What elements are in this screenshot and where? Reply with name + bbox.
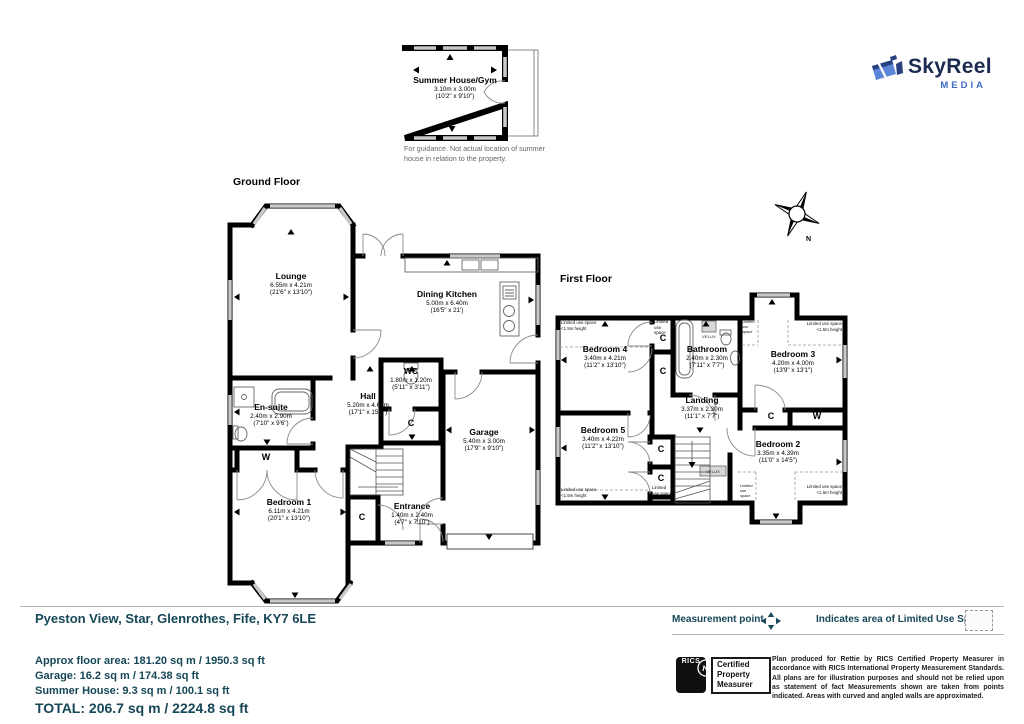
certified-property-measurer-badge: Certified Property Measurer	[711, 657, 771, 694]
cupboard-label: C	[768, 411, 775, 421]
room-label-garage: Garage 5.40m x 3.00m (17'9" x 9'10")	[463, 428, 505, 452]
limited-use-swatch	[965, 610, 993, 631]
wardrobe-label: W	[262, 452, 271, 462]
cupboard-label: C	[408, 418, 415, 428]
limited-use-note: Limited use space	[654, 319, 673, 336]
room-label-dining-kitchen: Dining Kitchen 5.00m x 6.40m (16'5" x 21…	[417, 290, 477, 314]
velux-window-label: VELUX	[702, 334, 716, 339]
room-dims-imperial: (10'2" x 9'10")	[413, 93, 497, 100]
cupboard-label: C	[660, 366, 667, 376]
approx-floor-area: Approx floor area: 181.20 sq m / 1950.3 …	[35, 654, 265, 669]
limited-use-note: Limited use space <1.5m height	[797, 484, 842, 495]
limited-use-note: Limited use space	[742, 320, 757, 335]
room-name: Summer House/Gym	[413, 76, 497, 86]
property-address: Pyeston View, Star, Glenrothes, Fife, KY…	[35, 611, 316, 626]
summer-house-area: Summer House: 9.3 sq m / 100.1 sq ft	[35, 684, 265, 699]
summer-house-note: For guidance. Not actual location of sum…	[404, 144, 554, 164]
cupboard-label: C	[658, 444, 665, 454]
room-label-hall: Hall 5.20m x 4.61m (17'1" x 15'1")	[347, 392, 389, 416]
limited-use-note: Limited use space <1.5m height	[561, 320, 596, 331]
decking-outline	[505, 50, 538, 136]
skyreel-logo-icon	[866, 52, 906, 92]
limited-use-note: Limited use space <1.5m height	[561, 487, 596, 498]
room-label-bedroom-5: Bedroom 5 3.40m x 4.22m (11'2" x 13'10")	[581, 426, 625, 450]
room-label-bathroom: Bathroom 2.40m x 2.30m (7'11" x 7'7")	[686, 345, 728, 369]
room-label-bedroom-4: Bedroom 4 3.40m x 4.21m (11'2" x 13'10")	[583, 345, 627, 369]
limited-use-note: Limited use space	[740, 484, 755, 499]
plan-disclaimer: Plan produced for Rettie by RICS Certifi…	[772, 655, 1004, 702]
logo-subtitle: MEDIA	[908, 80, 986, 91]
room-label-summer-house: Summer House/Gym 3.10m x 3.00m (10'2" x …	[413, 76, 497, 100]
ground-floor-title: Ground Floor	[233, 176, 300, 188]
divider-line	[20, 606, 1004, 607]
wardrobe-label: W	[813, 411, 822, 421]
room-dims-metric: 3.10m x 3.00m	[413, 86, 497, 93]
compass-rose-icon	[763, 183, 835, 255]
legend-limited-use-space: Indicates area of Limited Use Space	[816, 614, 987, 625]
rics-logo: RICS	[676, 657, 706, 693]
room-label-entrance: Entrance 1.40m x 2.40m (4'7" x 7'10")	[391, 502, 433, 526]
total-area: TOTAL: 206.7 sq m / 2224.8 sq ft	[35, 701, 265, 716]
legend-measurement-point: Measurement point	[672, 614, 764, 625]
velux-window-label: VELUX	[706, 469, 720, 474]
room-label-bedroom-1: Bedroom 1 6.11m x 4.21m (20'1" x 13'10")	[267, 498, 311, 522]
measurement-point-icon	[758, 610, 784, 632]
compass-north-label: N	[806, 236, 811, 243]
stairs-icon	[350, 449, 403, 495]
room-label-landing: Landing 3.37m x 2.30m (11'1" x 7'7")	[681, 396, 723, 420]
logo-wordmark: SkyReel	[908, 55, 992, 79]
room-label-wc: WC 1.80m x 1.20m (5'11" x 3'11")	[390, 367, 432, 391]
room-label-en-suite: En-suite 2.40m x 2.90m (7'10" x 9'6")	[250, 403, 292, 427]
limited-use-note: Limited use space <1.5m height	[798, 321, 842, 332]
garage-area: Garage: 16.2 sq m / 174.38 sq ft	[35, 669, 265, 684]
cupboard-label: C	[658, 473, 665, 483]
floor-areas-block: Approx floor area: 181.20 sq m / 1950.3 …	[35, 654, 265, 716]
floorplan-page: Summer House/Gym 3.10m x 3.00m (10'2" x …	[0, 0, 1024, 724]
room-label-bedroom-3: Bedroom 3 4.20m x 4.00m (13'9" x 13'1")	[771, 350, 815, 374]
cupboard-label: C	[359, 512, 366, 522]
divider-line	[672, 634, 1004, 635]
room-label-lounge: Lounge 6.55m x 4.21m (21'6" x 13'10")	[270, 272, 312, 296]
limited-use-note: Limited use space	[652, 485, 672, 496]
room-label-bedroom-2: Bedroom 2 3.35m x 4.39m (11'0" x 14'5")	[756, 440, 800, 464]
